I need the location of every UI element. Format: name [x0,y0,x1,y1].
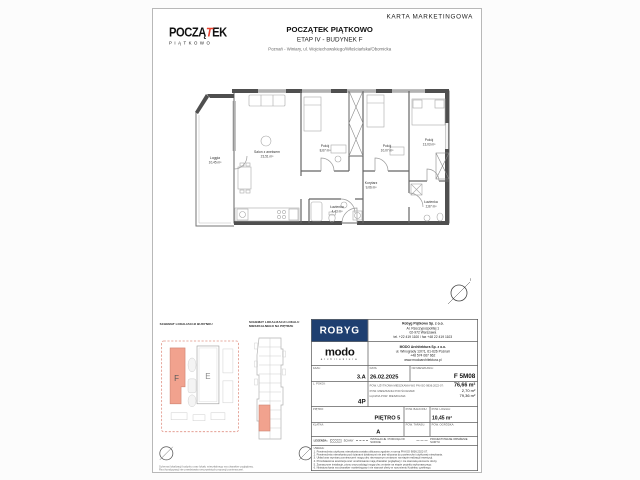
room-label-pokoj3: Pokój [425,138,434,142]
taras-cell: POW. TARASU: [404,423,430,436]
room-area-pokoj3: 13,03 m² [423,142,436,146]
phase-date-number-row: FAZA: 3.A DATA: 26.02.2025 NR MIESZKANIA… [312,365,478,381]
legend-row: LEGENDA: ŚCIANY INSTALACJE / PODCIĄGI W … [312,436,478,445]
room-label-loggia: Loggia [210,156,220,160]
liczba-pokoi-label: L. POKOI: [312,382,368,386]
robyg-logo: ROBYG [312,320,368,342]
building-f-label: F [174,374,179,383]
balkon-label: POW. BALKONU: [404,407,429,411]
modo-logo-main: modo [325,347,355,357]
architect-row: modo architektura MODO Architektura Sp. … [312,341,478,365]
floor-plan: Loggia 10,45 m² Salon z aneksem 23,51 m²… [191,81,471,311]
data-cell: DATA: 26.02.2025 [368,366,410,381]
disclaimer-row: UWAGA: 1. Powierzchnia użytkowa mieszkan… [312,445,478,470]
dotted-line-sample [416,440,428,441]
room-labels: Loggia 10,45 m² Salon z aneksem 23,51 m²… [209,138,438,213]
ogrodek-label: POW. OGRÓDKA: [430,423,477,427]
building-e-label: E [205,372,210,381]
architect-website: www.modoarchitektura.pl [404,358,441,362]
site-compass-icon [157,444,176,463]
brand-logo-wordmark: POCZĄTEK [169,26,227,40]
area-laczna-label: ŁĄCZNA POW. MIESZKANIA: [370,395,406,398]
compass-letter: N [470,277,471,282]
developer-phone: tel. +22 419 1100 / fax +48 22 419 1103 [394,335,453,339]
highlighted-unit [259,405,270,431]
room-label-pokoj2: Pokój [383,144,392,148]
apartment-info-table: ROBYG Robyg Piątkowo Sp. z o.o. Al. Rzec… [311,319,478,471]
faza-label: FAZA: [312,366,368,370]
developer-address: Robyg Piątkowo Sp. z o.o. Al. Rzeczyposp… [368,320,478,342]
faza-cell: FAZA: 3.A [312,366,368,381]
site-plan-schematic: F E [159,337,244,444]
area-uzytkowa-label: POW. UŻYTKOWA MIESZKANIA WG PN-ISO 9836:… [370,384,444,387]
legend-item-installations: INSTALACJE / PODCIĄGI W SUFICIE [370,438,413,444]
robyg-logo-cell: ROBYG [312,320,368,342]
nr-mieszkania-cell: NR MIESZKANIA: F 5M08 [410,366,478,381]
staircase-terrace-garden-row: KLATKA: A POW. TARASU: POW. OGRÓDKA: [312,422,478,436]
data-value: 26.02.2025 [368,373,409,381]
disclaimer-block: UWAGA: 1. Powierzchnia użytkowa mieszkan… [312,446,445,471]
klatka-value: A [312,428,404,436]
building-location-title: SCHEMAT LOKALIZACJI BUDYNKU [160,322,213,325]
liczba-pokoi-value: 4P [312,398,368,406]
logo-part1: POCZĄ [169,26,206,40]
rooms-areas-row: L. POKOI: 4P POW. UŻYTKOWA MIESZKANIA WG… [312,381,478,406]
legend-item-ceiling: PROJEKTOWANE OBNIŻENIE SUFITU [430,438,475,444]
nr-mieszkania-label: NR MIESZKANIA: [410,366,477,370]
page-subtitle: ETAP IV - BUDYNEK F [253,36,406,43]
klatka-label: KLATKA: [312,423,404,427]
balkon-cell: POW. BALKONU: [404,407,430,422]
developer-row: ROBYG Robyg Piątkowo Sp. z o.o. Al. Rzec… [312,320,478,342]
ogrodek-cell: POW. OGRÓDKA: [430,423,478,436]
room-label-korytarz: Korytarz [365,181,378,185]
room-area-korytarz: 9,06 m² [366,185,377,189]
legend-item-walls: ŚCIANY [344,439,354,442]
schematic-note: Schemat lokalizacji budynku oraz lokalu … [159,465,306,472]
marketing-card: KARTA MARKETINGOWA POCZĄTEK PIĄTKOWO POC… [0,0,640,480]
wardrobes [349,91,449,179]
floor-balcony-loggia-row: PIĘTRO: PIĘTRO 5 POW. BALKONU: POW. LOGG… [312,406,478,422]
page: KARTA MARKETINGOWA POCZĄTEK PIĄTKOWO POC… [152,8,482,473]
room-area-pokoj2: 10,07 m² [381,148,394,152]
legend-label: LEGENDA: [314,439,328,442]
data-label: DATA: [368,366,409,370]
taras-label: POW. TARASU: [404,423,429,427]
dashed-line-sample [356,440,368,441]
loggia-label: POW. LOGGIA: [430,407,477,411]
room-label-lazienka2: Łazienka [424,200,438,204]
loggia-cell: POW. LOGGIA: 10,45 m² [430,407,478,422]
pietro-label: PIĘTRO: [312,407,404,411]
klatka-cell: KLATKA: A [312,423,404,436]
ogrodek-value [430,435,477,436]
north-compass-icon: N [448,277,471,304]
faza-value: 3.A [312,373,368,381]
page-title: POCZĄTEK PIĄTKOWO [253,25,406,34]
pietro-value: PIĘTRO 5 [312,414,404,422]
room-area-salon: 23,51 m² [261,154,274,158]
area-laczna-value: 79,36 m² [460,393,476,398]
logo-part3: EK [212,26,227,40]
loggia-value: 10,45 m² [430,415,477,422]
disclaimer-line: 6. Niniejsza karta ma charakter marketin… [314,466,443,469]
pietro-cell: PIĘTRO: PIĘTRO 5 [312,407,404,422]
modo-logo-sub: architektura [321,358,359,361]
taras-value [404,435,429,436]
project-address: Poznań - Winiary, ul. Wojciechowskiego/W… [253,47,406,52]
room-area-lazienka1: 4,43 m² [332,209,343,213]
schematic-note-line2: Rzut kondygnacji nie przedstawia rzeczyw… [159,468,306,471]
architect-address: MODO Architektura Sp. z o.o. ul. Winogra… [368,342,478,365]
room-label-pokoj1: Pokój [321,144,330,148]
brand-logo: POCZĄTEK PIĄTKOWO [169,26,235,46]
modo-logo-cell: modo architektura [312,342,368,365]
room-area-loggia: 10,45 m² [209,160,222,164]
unit-location-title-line2: MIESZKALNEGO NA PIĘTRZE [249,324,299,328]
room-area-lazienka2: 2,87 m² [426,204,437,208]
walls-hatch-swatch [330,439,341,443]
unit-location-title: SCHEMAT LOKALIZACJI LOKALU MIESZKALNEGO … [249,320,299,328]
nr-mieszkania-value: F 5M08 [410,373,477,381]
brand-logo-subtitle: PIĄTKOWO [169,41,235,46]
furniture [235,95,445,222]
room-label-lazienka1: Łazienka [330,205,344,209]
areas-cell: POW. UŻYTKOWA MIESZKANIA WG PN-ISO 9836:… [368,382,478,406]
room-label-salon: Salon z aneksem [254,150,280,154]
document-type-label: KARTA MARKETINGOWA [387,13,473,20]
room-area-pokoj1: 8,67 m² [320,148,331,152]
liczba-pokoi-cell: L. POKOI: 4P [312,382,368,406]
title-block: POCZĄTEK PIĄTKOWO ETAP IV - BUDYNEK F Po… [253,25,406,52]
floor-location-schematic [249,335,294,447]
modo-logo: modo architektura [312,342,368,365]
